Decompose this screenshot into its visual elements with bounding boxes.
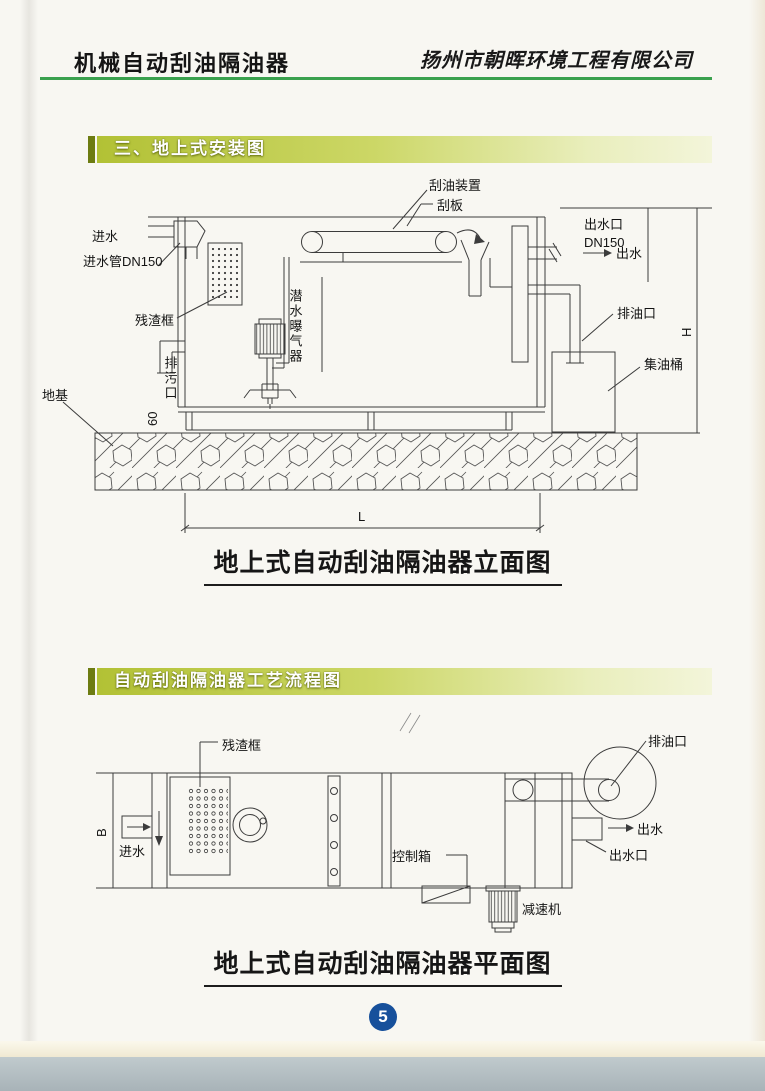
- banner-title: 三、地上式安装图: [114, 136, 266, 162]
- inlet-flow-arrow: [143, 823, 151, 831]
- label-water-outlet-port: 出水口: [609, 848, 648, 863]
- caption-elevation-view: 地上式自动刮油隔油器立面图: [203, 543, 561, 586]
- oil-collection-barrel: [552, 352, 615, 432]
- scraper-conveyor: [300, 230, 485, 262]
- label-speed-reducer: 减速机: [522, 902, 561, 917]
- section-banner-installation: 三、地上式安装图: [88, 136, 712, 163]
- stray-pen-marks: [400, 713, 420, 733]
- label-submersible-aerator: 潜水曝气器: [288, 289, 303, 364]
- perforated-baffle: [328, 776, 340, 886]
- label-oil-collection-barrel: 集油桶: [644, 357, 683, 372]
- submersible-aerator-unit: [244, 257, 322, 409]
- scanned-page: 机械自动刮油隔油器 扬州市朝晖环境工程有限公司 三、地上式安装图: [0, 0, 765, 1091]
- outlet-assembly-plan: [572, 818, 634, 852]
- plan-diagram: 残渣框 B 进水 排油口 出水 出水口 控制箱 减速机: [85, 700, 730, 940]
- label-inlet-pipe: 进水管DN150: [83, 254, 162, 269]
- foundation-band: [95, 433, 637, 490]
- label-residue-basket: 残渣框: [222, 738, 261, 753]
- company-name: 扬州市朝晖环境工程有限公司: [420, 44, 693, 73]
- residue-basket-elevation: [177, 243, 242, 318]
- inlet-assembly-plan: [122, 816, 152, 838]
- header-divider: [40, 77, 712, 80]
- label-water-inlet: 进水: [92, 229, 118, 244]
- label-water-outlet: 出水: [637, 822, 663, 837]
- outflow-arrow: [583, 249, 612, 257]
- pump-port-plan: [233, 808, 267, 842]
- dim-width-b: B: [94, 828, 109, 837]
- dim-length-l: L: [358, 509, 365, 524]
- label-residue-basket: 残渣框: [135, 313, 174, 328]
- label-water-inlet: 进水: [119, 844, 145, 859]
- banner-cap-bar: [88, 136, 95, 163]
- tank-base-frame: [186, 412, 512, 430]
- dim-base-60: 60: [145, 412, 160, 426]
- label-drain-outlet: 排污口: [163, 356, 178, 401]
- elevation-diagram: 进水 进水管DN150 残渣框 排污口 地基 潜水曝气器 刮油装置 刮板 出水口…: [35, 170, 725, 538]
- section-banner-process-flow: 自动刮油隔油器工艺流程图: [88, 668, 712, 695]
- banner-cap-bar: [88, 668, 95, 695]
- page-number-badge: 5: [369, 1003, 397, 1031]
- caption-plan-view: 地上式自动刮油隔油器平面图: [203, 944, 561, 987]
- scraper-belt-plan: [505, 741, 656, 819]
- oil-barrel-top-view: [584, 747, 656, 819]
- oil-discharge-assembly: [528, 285, 615, 432]
- outflow-arrow: [626, 824, 634, 832]
- page-right-edge: [749, 0, 765, 1041]
- scan-background-strip: [0, 1057, 765, 1091]
- banner-title: 自动刮油隔油器工艺流程图: [114, 668, 342, 694]
- page-title: 机械自动刮油隔油器: [74, 46, 290, 78]
- page-bottom-edge: [0, 1041, 765, 1057]
- dim-height-h: H: [679, 328, 694, 337]
- speed-reducer-motor: [486, 886, 520, 932]
- label-water-outlet: 出水: [616, 246, 642, 261]
- label-oil-discharge-port: 排油口: [648, 734, 687, 749]
- label-water-outlet-port: 出水口: [584, 217, 623, 232]
- residue-basket-plan: [170, 742, 230, 875]
- label-scraper-plate: 刮板: [437, 198, 463, 213]
- label-control-box: 控制箱: [392, 849, 431, 864]
- label-oil-discharge-port: 排油口: [617, 306, 656, 321]
- label-foundation: 地基: [42, 388, 68, 403]
- label-oil-scraping-device: 刮油装置: [429, 178, 481, 193]
